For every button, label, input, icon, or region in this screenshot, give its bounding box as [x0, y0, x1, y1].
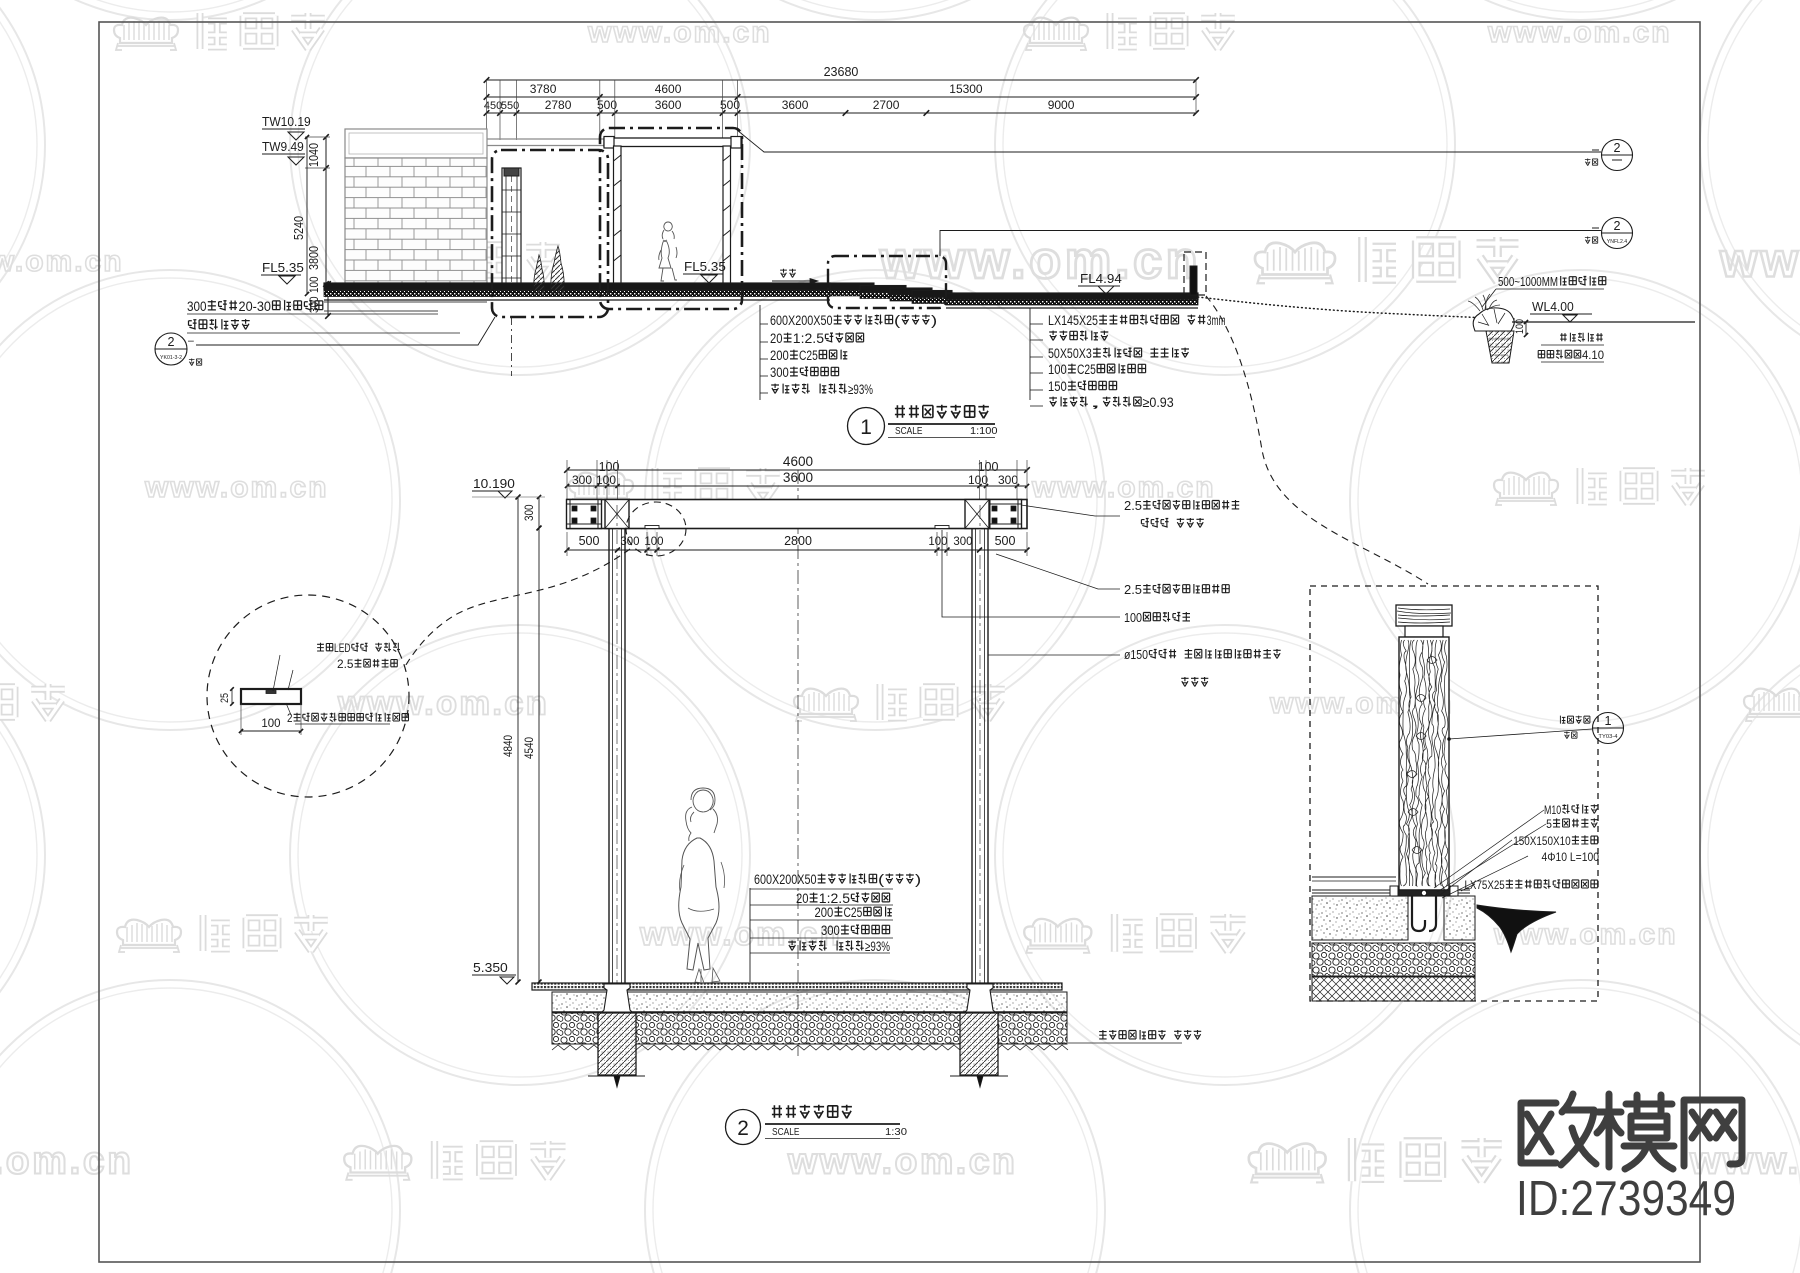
svg-text:23680: 23680: [824, 64, 859, 79]
svg-text:4Φ10 L=100: 4Φ10 L=100: [1542, 850, 1600, 864]
svg-text:100: 100: [261, 716, 280, 730]
svg-text:4840: 4840: [501, 735, 515, 757]
svg-text:300: 300: [998, 473, 1018, 487]
svg-text:3780: 3780: [530, 82, 557, 96]
svg-text:1:2.5: 1:2.5: [793, 331, 824, 346]
svg-text:WL4.00: WL4.00: [1532, 299, 1574, 314]
svg-text:500: 500: [579, 533, 600, 548]
svg-text:100: 100: [978, 459, 999, 474]
svg-text:500~1000MM: 500~1000MM: [1498, 274, 1558, 289]
svg-text:LX75X25: LX75X25: [1465, 878, 1505, 892]
svg-text:2: 2: [1614, 140, 1621, 155]
svg-text:3600: 3600: [783, 469, 813, 485]
svg-text:www.om.cn: www.om.cn: [0, 245, 124, 278]
svg-text:300: 300: [620, 534, 639, 548]
svg-text:4600: 4600: [655, 82, 682, 96]
svg-text:www.om.cn: www.om.cn: [1487, 16, 1672, 49]
svg-text:www.om.cn: www.om.cn: [0, 1140, 134, 1183]
svg-text:600X200X50: 600X200X50: [754, 872, 817, 887]
svg-text:200: 200: [815, 905, 834, 920]
svg-text:50X50X3: 50X50X3: [1048, 346, 1092, 361]
svg-text:2.5: 2.5: [337, 657, 354, 671]
svg-text:5: 5: [1546, 817, 1552, 831]
svg-text:5.350: 5.350: [473, 960, 508, 975]
svg-text:SCALE: SCALE: [772, 1127, 800, 1138]
svg-text:600X200X50: 600X200X50: [770, 313, 833, 328]
svg-text:ID:2739349: ID:2739349: [1516, 1172, 1736, 1226]
svg-text:300: 300: [821, 923, 840, 938]
svg-text:3800: 3800: [306, 246, 321, 270]
svg-text:2.5: 2.5: [1124, 582, 1142, 597]
svg-text:): ): [915, 872, 921, 887]
svg-text:TW10.19: TW10.19: [262, 114, 311, 129]
svg-text:2.5: 2.5: [1124, 498, 1142, 513]
svg-text:C25: C25: [1077, 362, 1096, 377]
svg-text:SCALE: SCALE: [895, 426, 923, 437]
svg-text:150: 150: [1048, 379, 1067, 394]
svg-text:25: 25: [219, 693, 231, 703]
svg-text:300: 300: [572, 473, 592, 487]
svg-text:300: 300: [770, 365, 789, 380]
svg-text:1:30: 1:30: [885, 1127, 907, 1138]
svg-text:2700: 2700: [873, 98, 900, 112]
svg-text:4.10: 4.10: [1582, 348, 1604, 362]
svg-text:150X150X10: 150X150X10: [1513, 834, 1571, 848]
svg-text:20: 20: [770, 331, 783, 346]
svg-text:300: 300: [187, 298, 207, 314]
svg-text:20: 20: [796, 891, 809, 906]
svg-text:www.om.cn: www.om.cn: [879, 231, 1201, 290]
svg-text:3600: 3600: [782, 98, 809, 112]
svg-text:FL4.94: FL4.94: [1080, 271, 1122, 286]
svg-text:www.om.cn: www.om.cn: [787, 1139, 1017, 1181]
svg-text:(: (: [878, 872, 885, 887]
svg-text:YNFL2.4: YNFL2.4: [1607, 239, 1627, 245]
svg-text:www.om.cn: www.om.cn: [144, 471, 329, 504]
svg-text:1: 1: [860, 414, 872, 439]
svg-text:,: ,: [1089, 395, 1102, 410]
svg-text:2: 2: [737, 1115, 749, 1140]
svg-text:100: 100: [968, 473, 988, 487]
svg-text:9000: 9000: [1048, 98, 1075, 112]
svg-text:2800: 2800: [784, 533, 812, 548]
svg-text:1:2.5: 1:2.5: [819, 891, 850, 906]
svg-text:FL5.35: FL5.35: [684, 259, 726, 274]
svg-text:10.190: 10.190: [473, 476, 515, 491]
svg-text:C25: C25: [799, 348, 818, 363]
svg-text:—: —: [188, 335, 194, 347]
svg-text:LED: LED: [334, 641, 351, 655]
svg-text:1:100: 1:100: [970, 426, 998, 437]
svg-text:5240: 5240: [291, 216, 306, 240]
svg-text:15300: 15300: [949, 82, 982, 96]
svg-text:ø150: ø150: [1124, 647, 1148, 662]
svg-text:4540: 4540: [522, 737, 536, 759]
svg-text:YK01-3-2: YK01-3-2: [160, 355, 182, 361]
svg-text:≥93%: ≥93%: [848, 382, 873, 397]
svg-text:100: 100: [307, 276, 321, 293]
svg-text:300: 300: [522, 504, 536, 521]
svg-text:100: 100: [1124, 610, 1142, 625]
svg-text:2: 2: [1614, 218, 1621, 233]
svg-text:FL5.35: FL5.35: [262, 260, 304, 275]
svg-text:3600: 3600: [655, 98, 682, 112]
svg-text:www.om.cn: www.om.cn: [337, 684, 549, 722]
svg-text:1: 1: [1605, 713, 1612, 728]
svg-text:≥0.93: ≥0.93: [1143, 395, 1174, 410]
svg-text:www.om.cn: www.om.cn: [1719, 234, 1800, 287]
svg-text:): ): [931, 313, 937, 328]
svg-text:www.om.cn: www.om.cn: [587, 16, 772, 49]
svg-text:20-30: 20-30: [239, 298, 272, 314]
svg-text:TY03-4: TY03-4: [1598, 734, 1618, 740]
svg-text:300: 300: [953, 534, 972, 548]
svg-text:200: 200: [770, 348, 789, 363]
svg-text:100: 100: [1048, 362, 1067, 377]
svg-text:100: 100: [1514, 319, 1526, 334]
svg-text:M10: M10: [1544, 803, 1561, 817]
svg-text:C25: C25: [844, 905, 863, 920]
svg-text:100: 100: [599, 459, 620, 474]
svg-text:2: 2: [168, 334, 175, 349]
svg-text:LX145X25: LX145X25: [1048, 313, 1098, 328]
svg-text:1040: 1040: [306, 143, 321, 167]
svg-text:≥93%: ≥93%: [865, 939, 890, 954]
svg-text:500: 500: [995, 533, 1016, 548]
svg-text:TW9.49: TW9.49: [262, 139, 304, 154]
svg-text:100: 100: [928, 534, 947, 548]
svg-text:4600: 4600: [783, 453, 813, 469]
svg-text:2780: 2780: [545, 98, 572, 112]
svg-text:(: (: [894, 313, 901, 328]
svg-text:100: 100: [596, 473, 616, 487]
svg-text:500: 500: [720, 98, 740, 112]
